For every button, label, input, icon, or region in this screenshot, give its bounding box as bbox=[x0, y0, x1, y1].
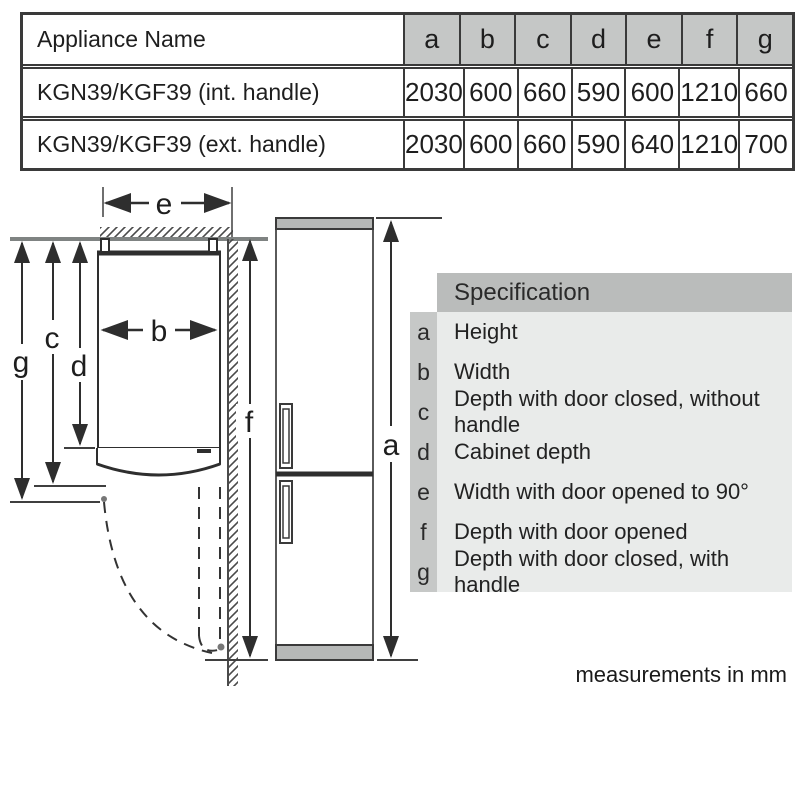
legend-row: c Depth with door closed, without handle bbox=[410, 392, 792, 432]
legend-label: Height bbox=[437, 312, 792, 352]
fridge-top-view bbox=[97, 239, 221, 502]
legend-key: c bbox=[410, 392, 437, 432]
legend-key: e bbox=[410, 472, 437, 512]
legend-label: Cabinet depth bbox=[437, 432, 792, 472]
legend-key: a bbox=[410, 312, 437, 352]
legend-label: Depth with door closed, with handle bbox=[437, 552, 792, 592]
dim-label-b: b bbox=[151, 315, 168, 348]
hinge-dot bbox=[218, 644, 225, 651]
dim-label-a: a bbox=[383, 429, 400, 462]
door-swing-arc bbox=[104, 502, 212, 653]
bottom-band bbox=[276, 645, 373, 660]
lower-door-handle bbox=[280, 481, 292, 543]
legend-key: b bbox=[410, 352, 437, 392]
handle-corner-dot bbox=[101, 496, 107, 502]
legend-row: a Height bbox=[410, 312, 792, 352]
fridge-side-view bbox=[276, 218, 373, 660]
door-open-dashed bbox=[104, 487, 225, 653]
legend-row: e Width with door opened to 90° bbox=[410, 472, 792, 512]
dim-label-f: f bbox=[245, 406, 254, 439]
dim-label-e: e bbox=[156, 188, 173, 221]
legend: a Height b Width c Depth with door close… bbox=[410, 312, 792, 592]
legend-key: d bbox=[410, 432, 437, 472]
dim-label-d: d bbox=[71, 350, 88, 383]
dim-label-c: c bbox=[45, 322, 60, 355]
dim-label-g: g bbox=[13, 346, 30, 379]
legend-key: g bbox=[410, 552, 437, 592]
hinge-left bbox=[101, 239, 109, 252]
dim-d: d bbox=[64, 243, 95, 448]
measurements-note: measurements in mm bbox=[575, 662, 787, 688]
legend-header: Specification bbox=[437, 273, 792, 312]
legend-label: Depth with door closed, without handle bbox=[437, 392, 792, 432]
legend-row: g Depth with door closed, with handle bbox=[410, 552, 792, 592]
legend-row: d Cabinet depth bbox=[410, 432, 792, 472]
legend-label: Width with door opened to 90° bbox=[437, 472, 792, 512]
legend-key: f bbox=[410, 512, 437, 552]
hinge-right bbox=[209, 239, 217, 252]
top-band bbox=[276, 218, 373, 229]
upper-door-handle bbox=[280, 404, 292, 468]
